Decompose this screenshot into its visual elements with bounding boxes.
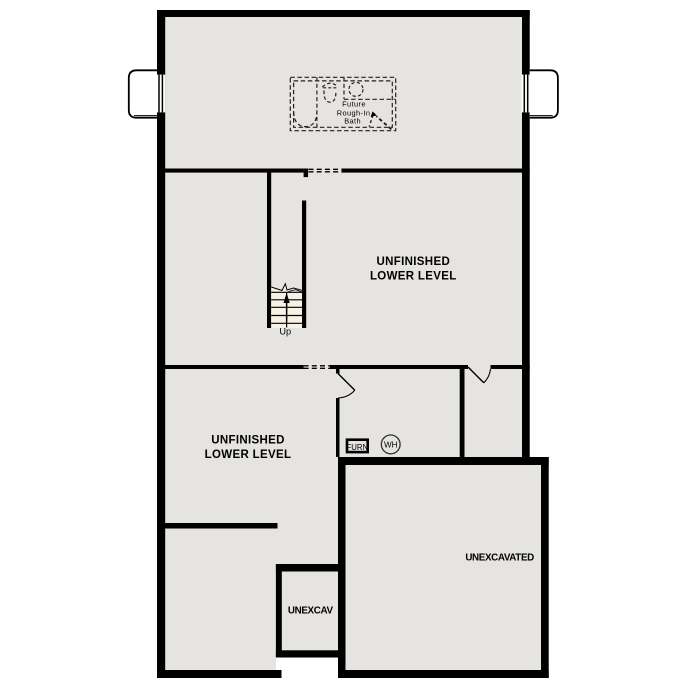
svg-text:UNEXCAVATED: UNEXCAVATED: [465, 552, 534, 563]
svg-text:Up: Up: [279, 326, 291, 336]
svg-text:UNFINISHED: UNFINISHED: [211, 434, 285, 446]
svg-text:UNFINISHED: UNFINISHED: [377, 256, 451, 268]
svg-text:WH: WH: [384, 441, 398, 450]
svg-text:LOWER LEVEL: LOWER LEVEL: [205, 449, 292, 461]
svg-text:Future: Future: [342, 100, 366, 109]
svg-text:Bath: Bath: [344, 117, 361, 126]
svg-text:LOWER LEVEL: LOWER LEVEL: [370, 271, 457, 283]
svg-text:UNEXCAV: UNEXCAV: [288, 606, 334, 617]
svg-text:FURN: FURN: [346, 443, 368, 452]
